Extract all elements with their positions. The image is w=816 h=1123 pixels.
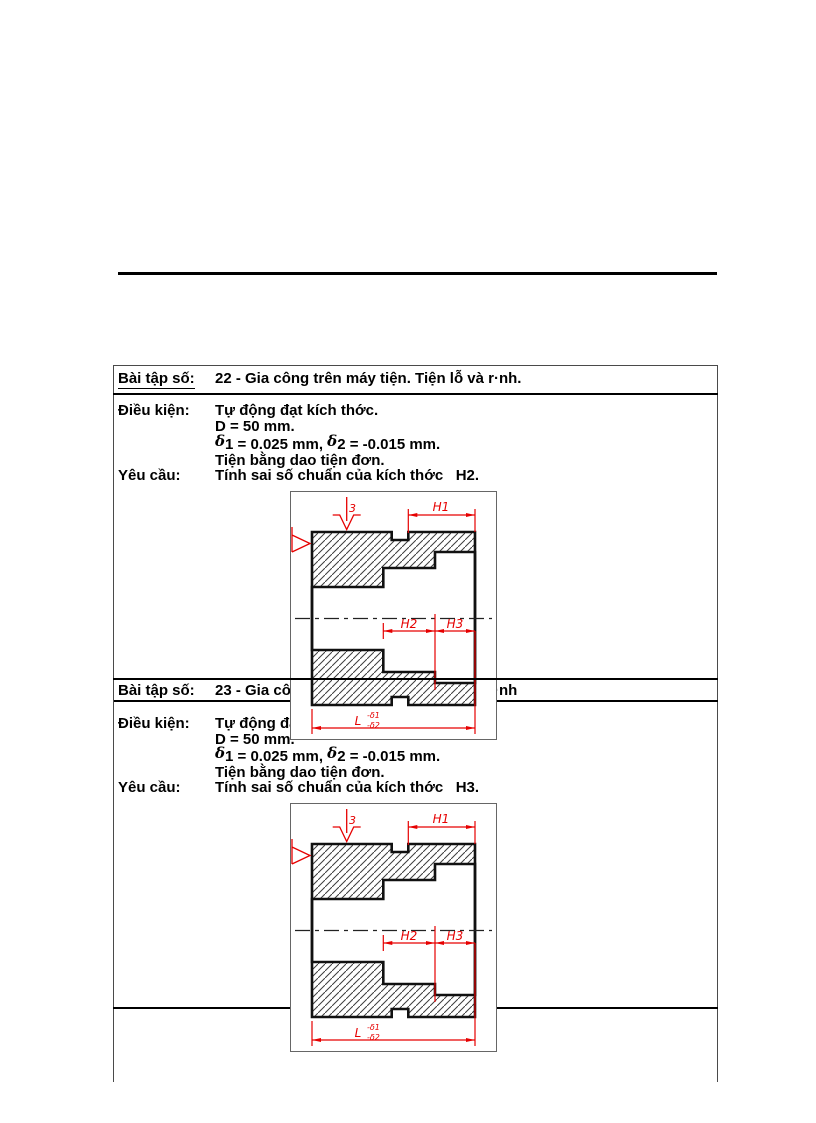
roughness-value: 3	[349, 814, 356, 827]
table-right-border	[717, 365, 718, 1082]
exercise-22-condition-2: D = 50 mm.	[215, 418, 295, 435]
table-top-border	[113, 365, 718, 366]
technical-drawing-1: 3 H1 H2 H3 L -δ1 -δ2	[290, 491, 497, 740]
exercise-22-title: 22 - Gia công trên máy tiện. Tiện lỗ và …	[215, 370, 521, 387]
dimension-label-h1: H1	[433, 812, 450, 826]
exercise-23-condition-2: D = 50 mm.	[215, 731, 295, 748]
dimension-label-h2: H2	[401, 617, 418, 631]
delta-2-value: 2 = -0.015 mm.	[337, 436, 440, 453]
dimension-tolerance-upper: -δ1	[367, 1023, 380, 1032]
exercise-23-condition-label: Điều kiện:	[118, 715, 190, 732]
top-rule	[118, 272, 717, 275]
delta-symbol: δ	[215, 744, 225, 762]
row-border-above-exercise-23	[113, 678, 718, 680]
exercise-22-condition-label: Điều kiện:	[118, 402, 190, 419]
document-page: Bài tập số: 22 - Gia công trên máy tiện.…	[0, 0, 816, 1123]
exercise-23-row-label: Bài tập số:	[118, 682, 195, 699]
dimension-label-h1: H1	[433, 500, 450, 514]
exercise-23-requirement-label: Yêu cầu:	[118, 779, 181, 796]
exercise-22-header-underline	[113, 393, 718, 395]
delta-1-value: 1 = 0.025 mm,	[225, 748, 327, 765]
exercise-23-condition-3: δ1 = 0.025 mm, δ2 = -0.015 mm.	[215, 748, 440, 765]
delta-1-value: 1 = 0.025 mm,	[225, 436, 327, 453]
delta-2-value: 2 = -0.015 mm.	[337, 748, 440, 765]
dimension-label-l: L	[355, 714, 362, 728]
exercise-23-row-label-text: Bài tập số:	[118, 682, 195, 701]
dimension-label-h3: H3	[447, 617, 464, 631]
dimension-label-l: L	[355, 1026, 362, 1040]
dimension-label-h3: H3	[447, 929, 464, 943]
exercise-22-requirement: Tính sai số chuẩn của kích thớc H2.	[215, 467, 479, 484]
exercise-22-row-label-text: Bài tập số:	[118, 370, 195, 389]
exercise-23-requirement: Tính sai số chuẩn của kích thớc H3.	[215, 779, 479, 796]
dimension-label-h2: H2	[401, 929, 418, 943]
delta-symbol: δ	[215, 432, 225, 450]
exercise-22-condition-1: Tự động đạt kích thớc.	[215, 402, 378, 419]
delta-symbol: δ	[327, 432, 337, 450]
dimension-tolerance-lower: -δ2	[367, 721, 380, 730]
exercise-22-requirement-label: Yêu cầu:	[118, 467, 181, 484]
delta-symbol: δ	[327, 744, 337, 762]
exercise-22-row-label: Bài tập số:	[118, 370, 195, 387]
exercise-22-condition-3: δ1 = 0.025 mm, δ2 = -0.015 mm.	[215, 436, 440, 453]
roughness-value: 3	[349, 502, 356, 515]
dimension-tolerance-lower: -δ2	[367, 1033, 380, 1042]
table-left-border	[113, 365, 114, 1082]
technical-drawing-2: 3 H1 H2 H3 L -δ1 -δ2	[290, 803, 497, 1052]
dimension-tolerance-upper: -δ1	[367, 711, 380, 720]
